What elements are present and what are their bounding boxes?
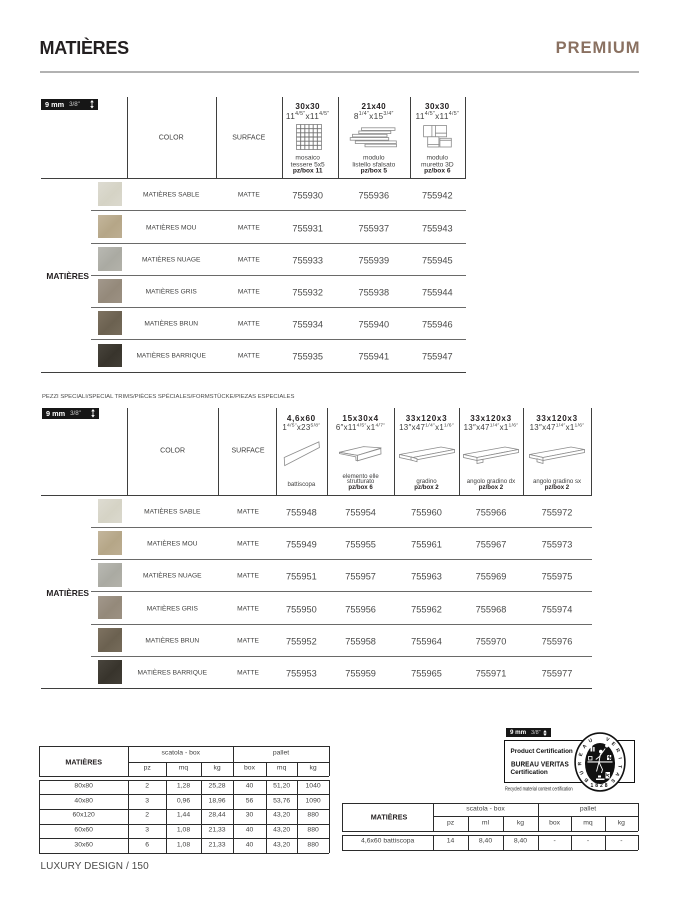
svg-text:1828: 1828	[590, 783, 609, 789]
